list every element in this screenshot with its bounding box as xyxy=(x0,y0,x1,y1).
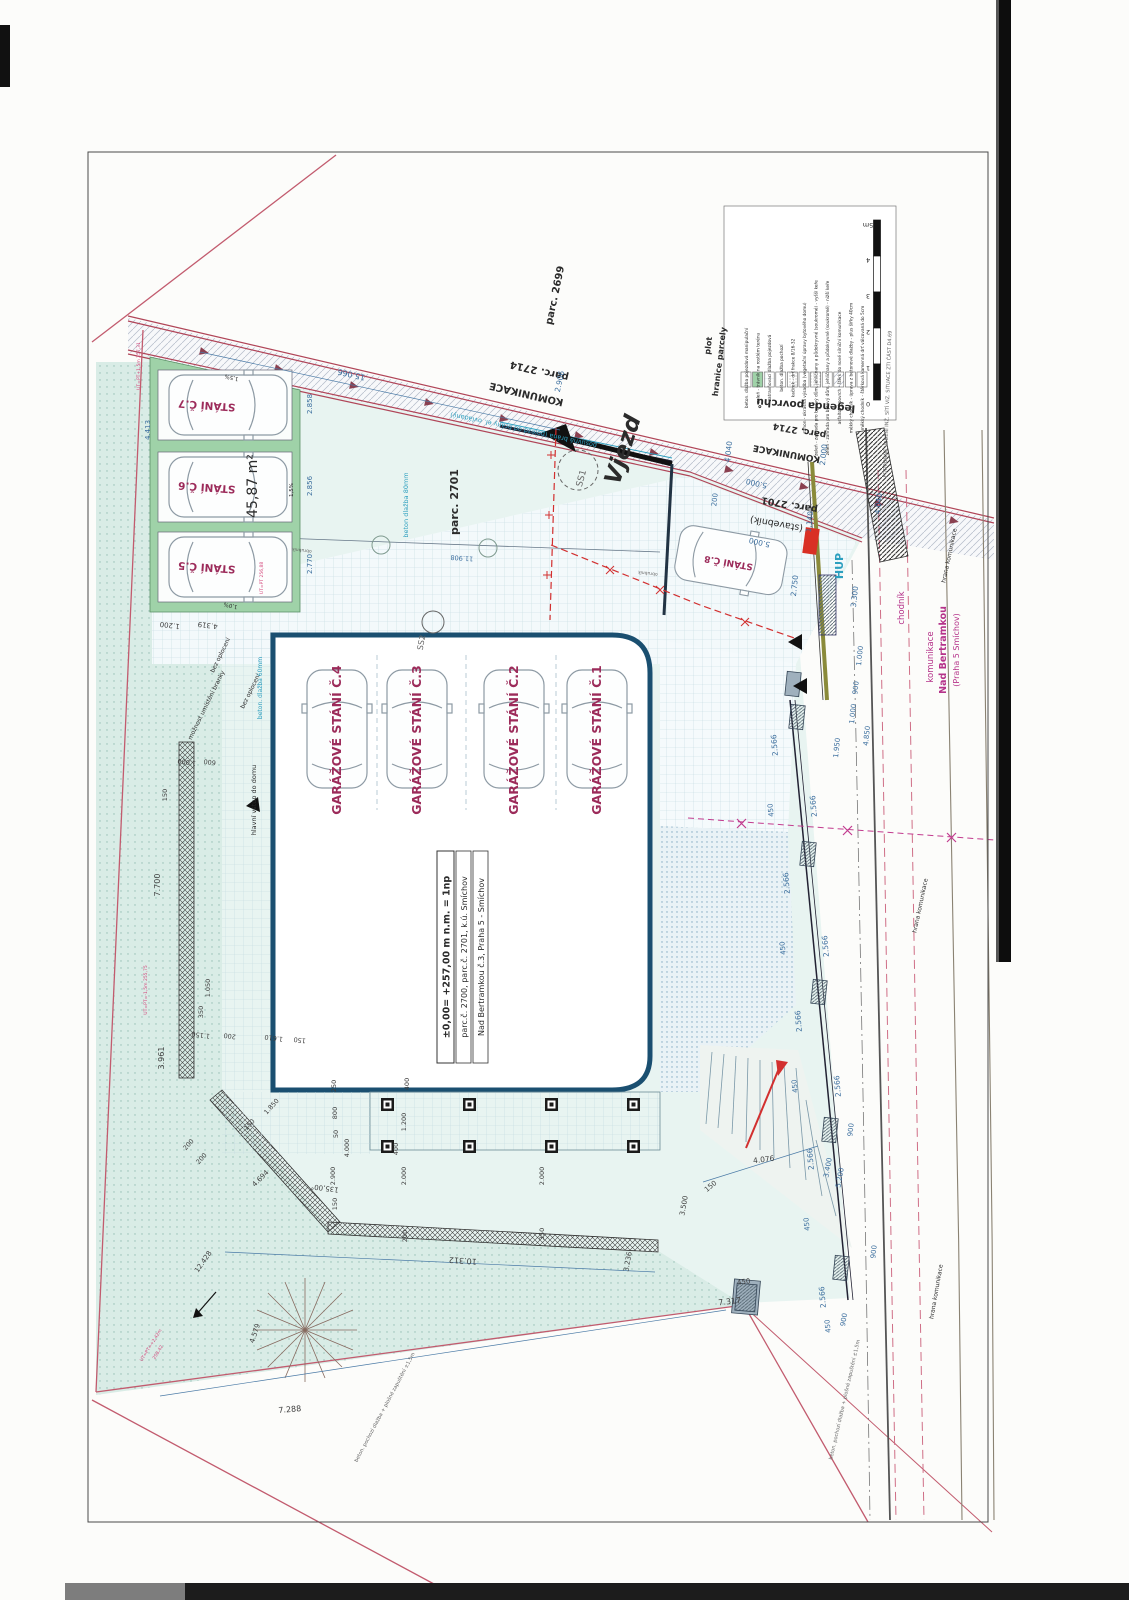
dim-label: 150 xyxy=(161,789,169,801)
dim-label: 450 xyxy=(823,1319,832,1333)
title-block: ±0,00= +257,00 m n.m. = 1np parc.č. 2700… xyxy=(437,851,488,1063)
title-line-elevation: ±0,00= +257,00 m n.m. = 1np xyxy=(442,876,453,1039)
legend-item: měkký chodník - štěrková kamenná drť vál… xyxy=(859,306,866,431)
dim-label: 900 xyxy=(869,1245,878,1259)
legend-item: asfaltový povrch - štěrk do nové silničn… xyxy=(836,311,843,424)
dim-label: 2.000 xyxy=(818,443,829,466)
dim-label: 2.566 xyxy=(793,1010,804,1032)
parcel-label-2699: parc. 2699 xyxy=(544,265,567,326)
legend-item: záhon - okrasná výsadba (vegetační úprav… xyxy=(801,302,808,433)
paving-note-label: beton. dlažba 60mm xyxy=(257,657,264,719)
scan-corner-mark xyxy=(0,25,10,87)
street xyxy=(852,428,994,1520)
road-edge-label: hrana komunikace xyxy=(928,1264,945,1320)
elevation-mark: UT=PT 256,88 xyxy=(259,562,265,595)
road-label: KOMUNIKACE xyxy=(752,442,821,464)
gas-connection-label: HUP xyxy=(833,553,846,579)
dim-label: 450 xyxy=(778,941,787,955)
dim-label: 1.950 xyxy=(832,737,842,758)
dim-label: 1.200 xyxy=(400,1113,408,1132)
garage-stall-label: GARÁŽOVÉ STÁNÍ Č.2 xyxy=(506,665,521,814)
garage-stall-label: GARÁŽOVÉ STÁNÍ Č.1 xyxy=(589,665,604,814)
garage-stall-label: GARÁŽOVÉ STÁNÍ Č.3 xyxy=(409,665,424,814)
surface-note-label: beton. pochozí dlažba + plošné zapuštění… xyxy=(827,1339,862,1461)
dim-label: 200 xyxy=(401,1230,409,1242)
legend-item: kačírek - drť frakce 8/16-32 xyxy=(789,338,796,397)
dim-label: 150 xyxy=(293,1035,306,1044)
dim-label: 2.858 xyxy=(306,394,314,414)
dim-label: 1.050 xyxy=(204,979,212,998)
elevation-mark: UT=PT=-1,5m 255,75 xyxy=(143,965,149,1015)
legend-item: beton. dlažba pojezdová manipulační xyxy=(743,327,750,408)
street-dashed-line xyxy=(906,470,924,1520)
slope-label: 1,5% xyxy=(289,483,295,497)
pergola-terrace xyxy=(370,1092,660,1150)
dim-label: 900 xyxy=(851,681,860,695)
dim-label: 4.850 xyxy=(862,725,872,746)
street-city-label: (Praha 5 Smíchov) xyxy=(952,613,961,686)
dim-label: 2.770 xyxy=(306,554,314,574)
dim-label: 2.566 xyxy=(817,1286,828,1308)
dim-label: 7.288 xyxy=(278,1404,302,1415)
legend-item: zeleň - zahrada pro bytový dům, jehlična… xyxy=(824,280,831,455)
sidewalk-label: chodník xyxy=(897,591,907,624)
title-line-parcels: parc.č. 2700, parc.č. 2701, k.ú. Smíchov xyxy=(459,876,469,1038)
dim-label: 4.413 xyxy=(144,420,152,440)
dim-label: 900 xyxy=(846,1123,855,1137)
road-edge-label: hrana komunikace xyxy=(911,878,929,934)
scale-tick: 1 xyxy=(866,364,870,372)
scale-tick: 0 xyxy=(866,400,870,408)
dim-label: 2.900 xyxy=(329,1167,337,1186)
site-plan-drawing: GARÁŽOVÉ STÁNÍ Č.4 GARÁŽOVÉ STÁNÍ Č.3 GA… xyxy=(0,0,1129,1600)
dim-label: 2.566 xyxy=(832,1075,843,1097)
dim-label: 2.566 xyxy=(808,795,819,817)
dim-label: 200 xyxy=(710,493,719,507)
street-name-label: Nad Bertramkou xyxy=(938,606,949,694)
dim-label: 450 xyxy=(766,803,775,817)
dim-label: 150 xyxy=(331,1198,339,1210)
retaining-wall-left xyxy=(179,742,194,1078)
scanned-site-plan-page: GARÁŽOVÉ STÁNÍ Č.4 GARÁŽOVÉ STÁNÍ Č.3 GA… xyxy=(0,0,1129,1600)
fence-label: plot xyxy=(703,336,714,355)
scale-tick: 5m xyxy=(863,221,873,229)
building: GARÁŽOVÉ STÁNÍ Č.4 GARÁŽOVÉ STÁNÍ Č.3 GA… xyxy=(222,635,660,1154)
dim-label: 50 xyxy=(332,1130,340,1138)
title-line-address: Nad Bertramkou č.3, Praha 5 - Smíchov xyxy=(476,878,486,1036)
dim-label: 2.566 xyxy=(769,734,780,756)
dim-label: 350 xyxy=(197,1006,205,1018)
scan-bottom-strip xyxy=(65,1583,1129,1600)
dim-label: 2.000 xyxy=(400,1167,408,1186)
green-parking: STÁNÍ Č.7 STÁNÍ Č.6 STÁNÍ Č.5 45,87 m² xyxy=(150,357,300,612)
dim-label: 350 xyxy=(538,1228,546,1240)
scan-edge-line xyxy=(996,0,999,962)
dim-label: 7.700 xyxy=(153,874,162,897)
legend-item: zeleň - trávník na rostlém terénu xyxy=(755,332,762,403)
legend-item: beton. dlažba pochozí xyxy=(778,344,785,392)
dim-label: 200 xyxy=(223,1031,236,1040)
legend-item: zatravňovací dlažba pojezdová xyxy=(766,334,773,401)
scale-bar xyxy=(874,220,881,400)
street-label: komunikace xyxy=(926,631,936,682)
hup-cabinet xyxy=(819,575,836,635)
scan-bottom-gray xyxy=(65,1583,185,1600)
dim-label: 2.566 xyxy=(805,1148,816,1170)
parcel-label-2701: parc. 2701 xyxy=(448,469,461,535)
paving-note-label: beton dlažba 80mm xyxy=(402,472,410,537)
dim-label: 800 xyxy=(331,1107,339,1119)
dim-label: 250 xyxy=(330,1080,338,1092)
dim-label: 450 xyxy=(790,1079,799,1093)
scale-tick: 3 xyxy=(866,292,870,300)
dim-label: 900 xyxy=(839,1312,849,1327)
legend-item: měkký chodník - úprava z betonové dlažby… xyxy=(847,303,854,433)
main-entrance-label: hlavní vstup do domu xyxy=(250,765,258,836)
dim-label: 600 xyxy=(203,757,216,766)
scan-edge-bar xyxy=(999,0,1011,962)
dim-label: 1.000 xyxy=(855,645,865,666)
dim-label: 2.856 xyxy=(306,475,314,496)
dim-label: 1.000 xyxy=(848,703,858,724)
tree-starburst xyxy=(253,1278,357,1382)
scale-tick: 4 xyxy=(866,256,870,264)
dim-label: 450 xyxy=(802,1217,811,1231)
elevation-mark: UT=PT+1,5m 257,31 xyxy=(136,342,142,390)
dim-label: 2.566 xyxy=(781,872,792,894)
dim-label: 3.300 xyxy=(849,585,860,608)
scale-tick: 2 xyxy=(866,328,870,336)
dim-label: 400 xyxy=(392,1143,400,1155)
sidewalk-edge xyxy=(944,430,962,1520)
dim-label: 11.908 xyxy=(450,553,473,563)
dim-label: 2.566 xyxy=(820,935,831,957)
stall-area-label: 45,87 m² xyxy=(245,454,261,518)
dim-label: 2.000 xyxy=(538,1167,546,1186)
surface-note-label: beton. pochozí dlažba + plošné zapuštění… xyxy=(353,1351,417,1463)
dim-label: 400 xyxy=(403,1078,411,1090)
dim-label: 4.000 xyxy=(343,1139,351,1158)
dim-label: 3.961 xyxy=(157,1047,166,1070)
garage-stall-label: GARÁŽOVÉ STÁNÍ Č.4 xyxy=(329,665,344,815)
